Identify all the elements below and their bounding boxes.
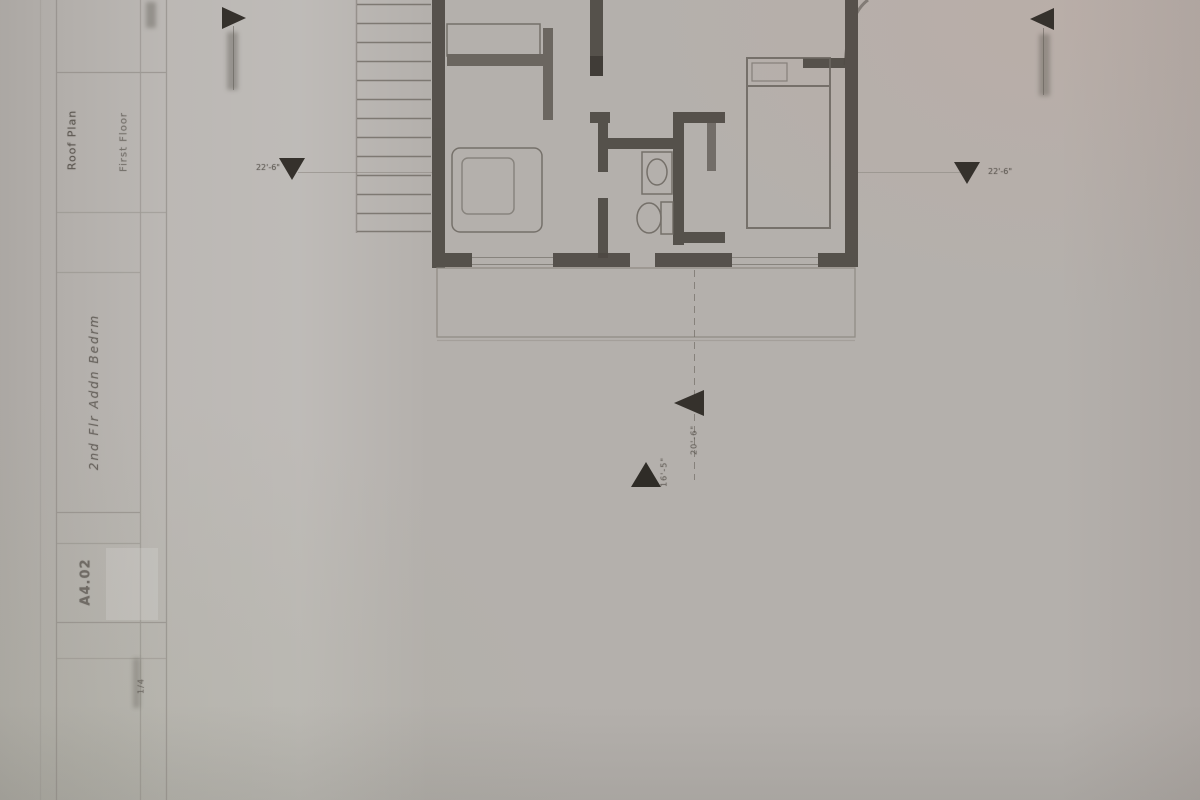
titleblock-sheet-number: A4.02 [79, 558, 94, 605]
bathroom-fixtures [637, 152, 673, 234]
title-block-lines [41, 0, 167, 800]
center-arrow-up-icon [631, 462, 661, 487]
center-arrow-up-label: 16'-5" [660, 457, 669, 487]
section-marker-right-icon [222, 7, 246, 29]
deck-outline [437, 268, 855, 341]
titleblock-top-smudge [146, 2, 156, 28]
left-room-furniture [447, 24, 553, 232]
titleblock-secondary-field: First Floor [119, 112, 130, 172]
illegible-label-smudge [1039, 34, 1050, 96]
right-room-furniture [747, 58, 830, 228]
interior-walls [590, 0, 845, 258]
center-arrow-left-icon [674, 390, 704, 416]
titleblock-project-field: Roof Plan [66, 110, 79, 170]
window-sills [472, 258, 818, 265]
section-marker-left-icon [1030, 8, 1054, 30]
staircase [357, 0, 432, 233]
titleblock-bottom-smudge [133, 658, 140, 708]
scanned-sheet: Roof Plan First Floor 2nd Flr Addn Bedrm… [0, 0, 1200, 800]
floor-plan-drawing [0, 0, 1200, 800]
level-marker-left-label: 22'-6" [244, 163, 280, 172]
level-marker-right-label: 22'-6" [988, 167, 1012, 176]
level-marker-down-icon [954, 162, 980, 184]
level-marker-down-icon [279, 158, 305, 180]
illegible-label-smudge [227, 32, 238, 90]
center-arrow-left-label: 20'-6" [690, 425, 699, 455]
titleblock-handwritten-note: 2nd Flr Addn Bedrm [87, 314, 101, 470]
reference-lines [234, 26, 1044, 480]
